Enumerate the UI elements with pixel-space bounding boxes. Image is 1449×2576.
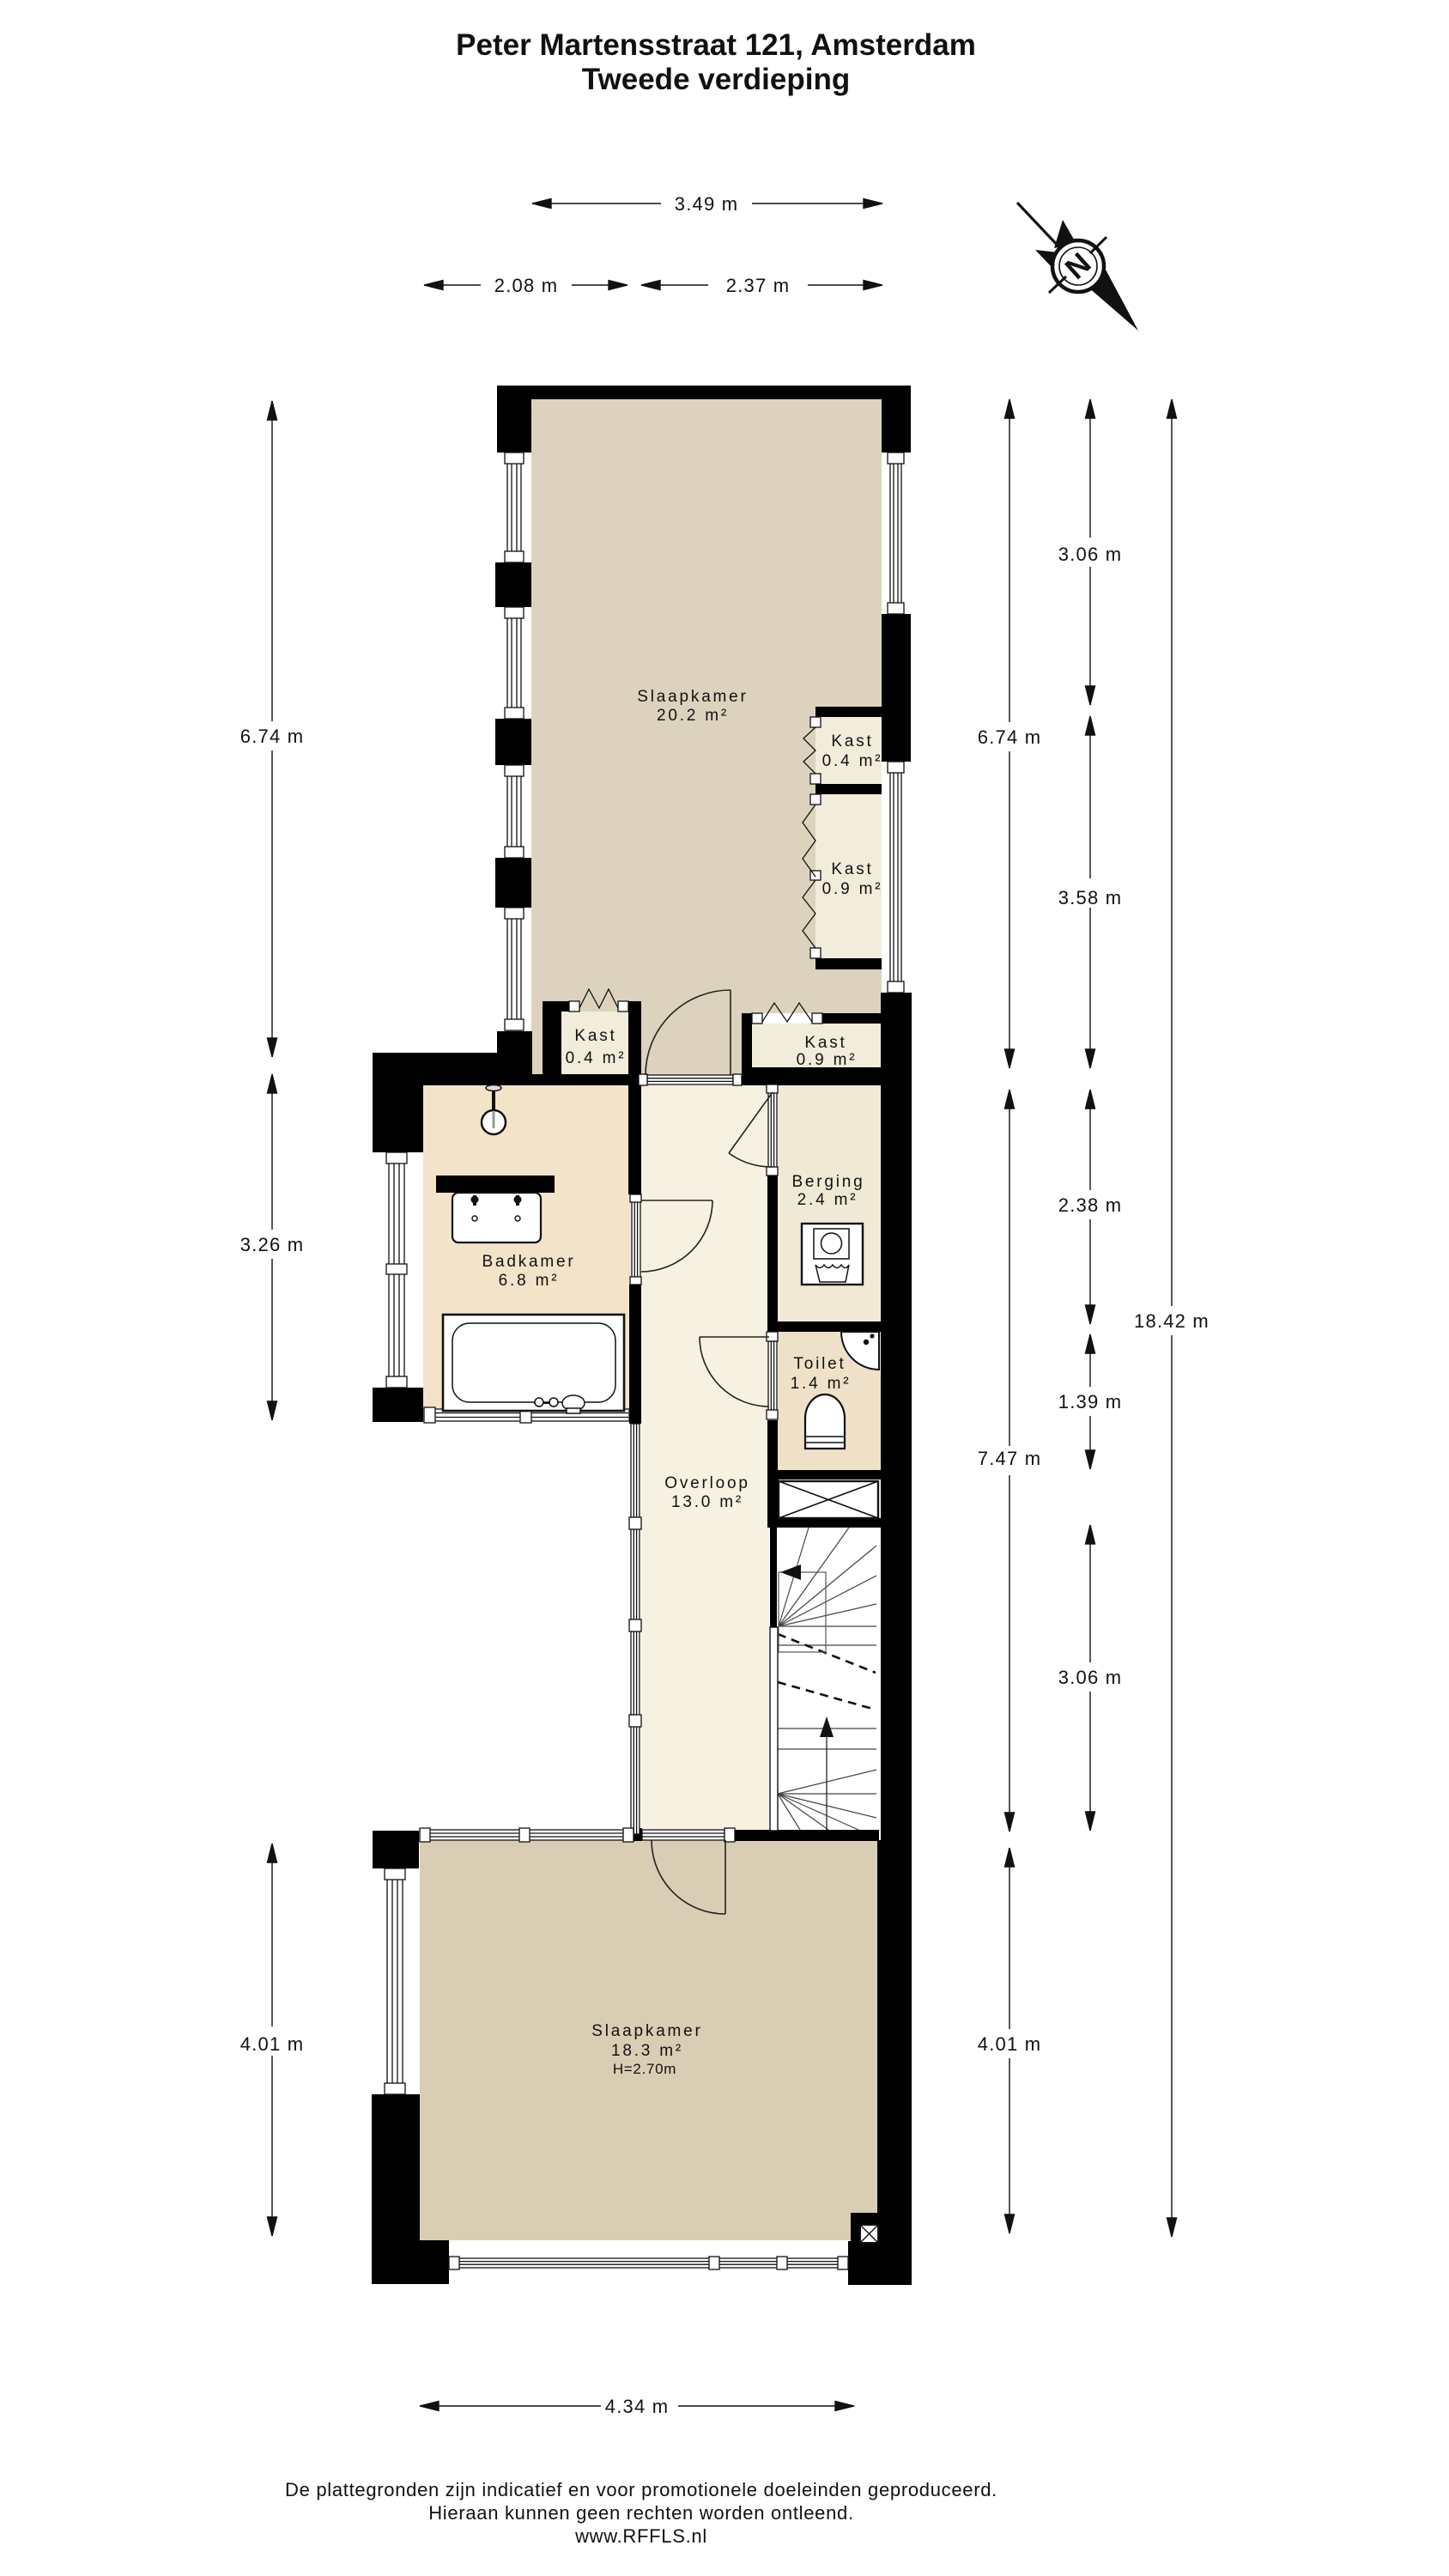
svg-text:2.38 m: 2.38 m: [1058, 1194, 1122, 1216]
svg-text:3.49 m: 3.49 m: [675, 193, 738, 215]
svg-text:Tweede verdieping: Tweede verdieping: [582, 63, 851, 96]
svg-text:4.01 m: 4.01 m: [978, 2033, 1041, 2055]
svg-text:3.26 m: 3.26 m: [240, 1234, 304, 1255]
svg-text:Kast: Kast: [831, 732, 873, 750]
svg-text:0.9 m²: 0.9 m²: [822, 880, 883, 898]
svg-text:1.4 m²: 1.4 m²: [791, 1375, 852, 1393]
svg-text:H=2.70m: H=2.70m: [613, 2061, 676, 2077]
svg-text:4.34 m: 4.34 m: [605, 2396, 669, 2417]
svg-text:Slaapkamer: Slaapkamer: [591, 2022, 702, 2040]
svg-text:Toilet: Toilet: [793, 1355, 846, 1373]
svg-text:Overloop: Overloop: [664, 1474, 750, 1492]
svg-text:Berging: Berging: [791, 1173, 864, 1191]
svg-text:6.74 m: 6.74 m: [240, 726, 304, 747]
svg-text:De plattegronden zijn indicati: De plattegronden zijn indicatief en voor…: [285, 2479, 997, 2500]
svg-text:7.47 m: 7.47 m: [978, 1448, 1041, 1469]
svg-text:3.06 m: 3.06 m: [1058, 544, 1122, 565]
svg-text:3.58 m: 3.58 m: [1058, 887, 1122, 908]
svg-text:0.4 m²: 0.4 m²: [822, 752, 883, 770]
svg-text:Kast: Kast: [831, 860, 873, 878]
svg-text:18.3 m²: 18.3 m²: [611, 2042, 683, 2060]
svg-text:1.39 m: 1.39 m: [1058, 1391, 1122, 1413]
svg-text:13.0 m²: 13.0 m²: [671, 1493, 743, 1511]
svg-text:2.4 m²: 2.4 m²: [797, 1191, 858, 1209]
svg-text:2.37 m: 2.37 m: [726, 275, 790, 296]
svg-text:www.RFFLS.nl: www.RFFLS.nl: [574, 2525, 707, 2547]
svg-text:20.2 m²: 20.2 m²: [657, 707, 729, 725]
svg-text:0.9 m²: 0.9 m²: [797, 1051, 858, 1069]
svg-text:3.06 m: 3.06 m: [1058, 1667, 1122, 1688]
svg-text:6.74 m: 6.74 m: [978, 726, 1041, 748]
svg-text:4.01 m: 4.01 m: [240, 2033, 304, 2055]
svg-text:Kast: Kast: [574, 1027, 616, 1045]
svg-text:Kast: Kast: [804, 1034, 846, 1052]
svg-text:Peter Martensstraat 121, Amste: Peter Martensstraat 121, Amsterdam: [456, 28, 976, 62]
svg-text:6.8 m²: 6.8 m²: [499, 1272, 560, 1290]
svg-text:18.42 m: 18.42 m: [1134, 1310, 1210, 1332]
svg-text:Badkamer: Badkamer: [482, 1253, 576, 1271]
svg-text:Hieraan kunnen geen rechten wo: Hieraan kunnen geen rechten worden ontle…: [428, 2502, 854, 2524]
svg-text:2.08 m: 2.08 m: [494, 275, 558, 296]
svg-text:Slaapkamer: Slaapkamer: [637, 688, 748, 706]
svg-text:0.4 m²: 0.4 m²: [566, 1049, 627, 1067]
